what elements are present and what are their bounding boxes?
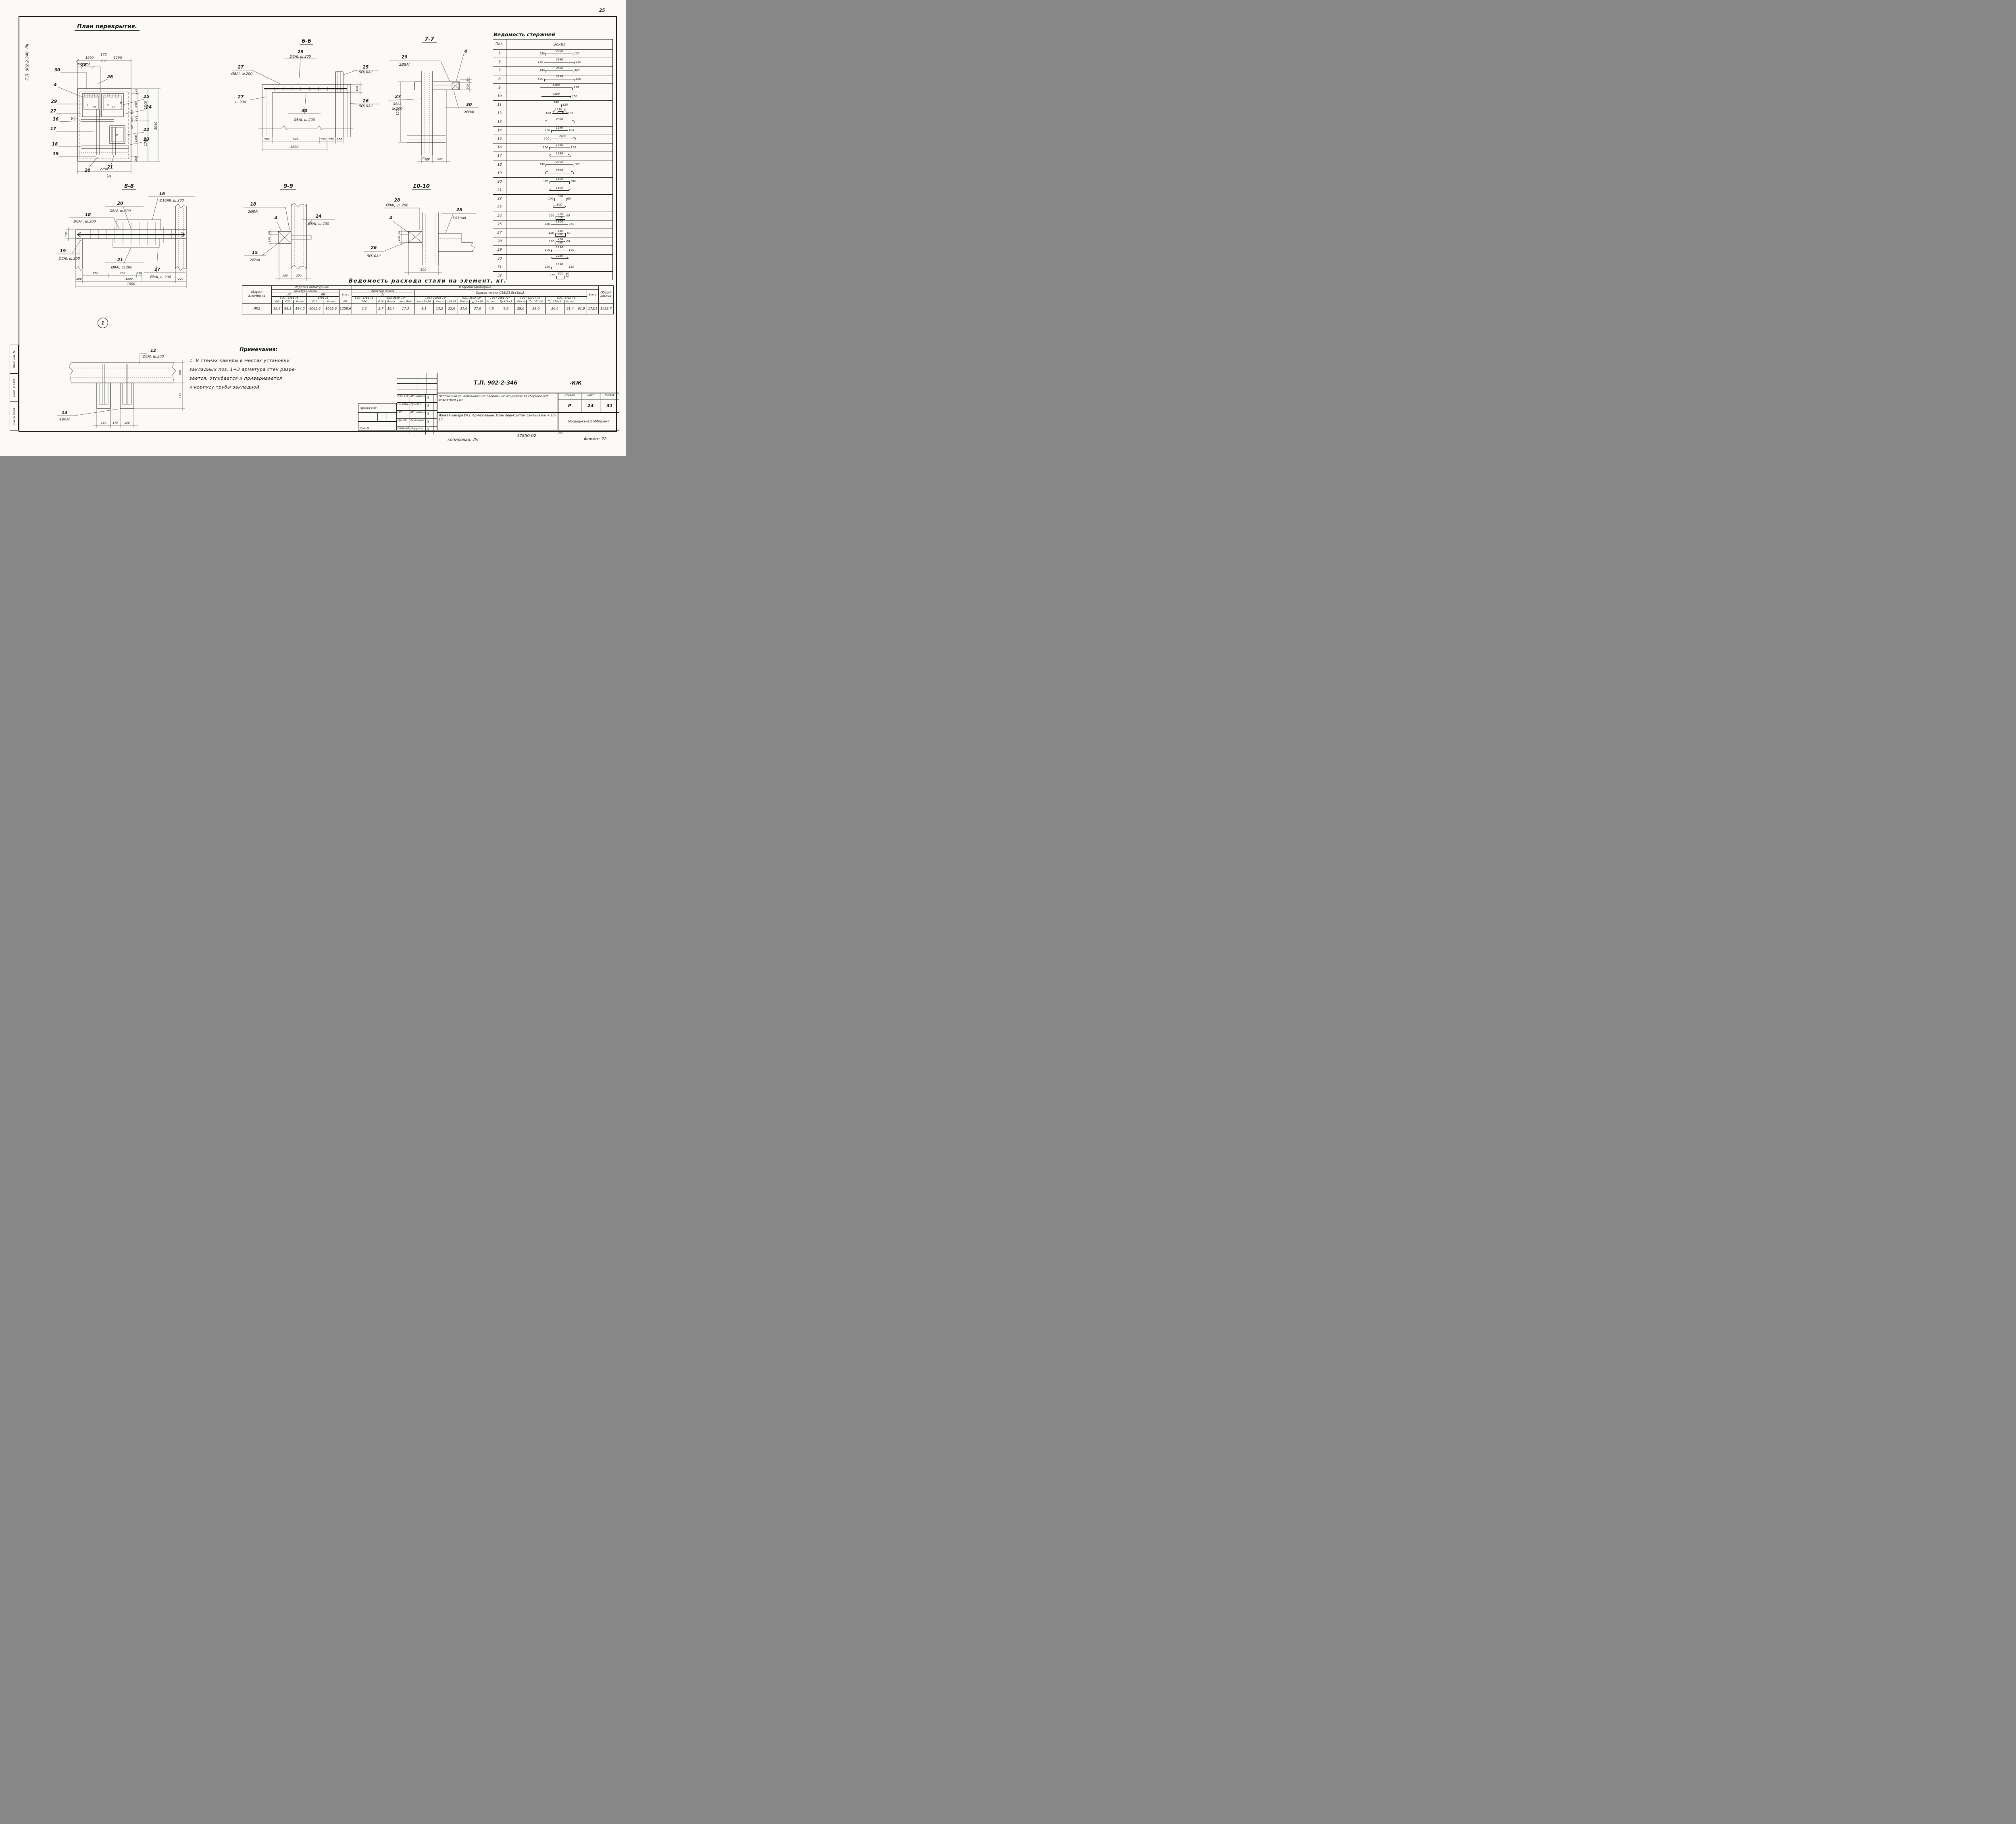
section-7-7: 7-7 29 2Ø8AI 4: [373, 34, 486, 171]
leaders: [364, 208, 476, 252]
stamp-vertical: -Т.П. 902-2-346. ЛII: [25, 10, 30, 115]
svg-text:8: 8: [108, 175, 111, 179]
svg-text:700: 700: [120, 272, 125, 275]
section-6-6: 6-6: [224, 36, 389, 157]
steel-title: Ведомость расхода стали на элемент, кг.: [242, 278, 614, 284]
signature: [426, 395, 433, 402]
svg-text:1290: 1290: [290, 145, 298, 149]
svg-text:8: 8: [107, 104, 109, 107]
rib-detail: 12 Ø8AI, ш.200 13 4Ø8AI 200 150 150 170 …: [49, 341, 198, 439]
dimension-text: 150 170 150: [101, 421, 130, 424]
annotations: 29 2Ø8AI 4 27 Ø8AI, ш.200 30 2Ø8AI 800 3…: [392, 49, 475, 116]
svg-text:150: 150: [337, 138, 342, 141]
dimension-text: 200 940 150 170 150 1290: [264, 138, 342, 149]
svg-text:940: 940: [134, 102, 137, 108]
notes: Примечания: 1. В стенах камеры в местах …: [190, 345, 371, 393]
sig-row: ИнженерНарунец: [397, 427, 437, 435]
svg-text:21: 21: [117, 258, 123, 262]
svg-text:20: 20: [85, 168, 91, 173]
empty-cells: [358, 413, 397, 422]
rods-table: Поз. Эскиз 51502700150 61502990150 75002…: [493, 39, 613, 280]
svg-text:27: 27: [395, 94, 401, 99]
rod-row: 23800: [493, 203, 612, 212]
linework: [278, 203, 311, 269]
svg-text:200: 200: [76, 277, 82, 281]
margin-cell: Инв. № подл.: [10, 402, 19, 431]
svg-text:12: 12: [150, 348, 156, 353]
svg-text:17: 17: [154, 267, 160, 272]
section-9-9: 9-9 18 2Ø8AI 4 24 Ø8AI, ш.200 15: [238, 182, 339, 287]
section-title: 7-7: [425, 36, 434, 42]
rod-row: 85002970500: [493, 75, 612, 84]
section-title: 6-6: [302, 38, 311, 44]
svg-text:100: 100: [267, 237, 271, 242]
notes-title: Примечания:: [238, 346, 279, 353]
doc-number: Т.П. 902-2-346: [474, 380, 517, 386]
plan-drawing: 30 28 26 4 29 27 16 17 18 19 20 21 25 24…: [48, 48, 222, 187]
svg-text:5Ø10AII: 5Ø10AII: [452, 216, 466, 220]
svg-text:100: 100: [466, 84, 469, 89]
svg-text:1500: 1500: [134, 135, 137, 142]
svg-text:200: 200: [424, 158, 430, 161]
rod-row: 192700: [493, 169, 612, 178]
doc-number-cell: Т.П. 902-2-346 -КЖ: [437, 373, 619, 393]
rod-row: 12100310110310100: [493, 109, 612, 118]
svg-text:2Ø8AI: 2Ø8AI: [250, 258, 260, 262]
linework: [407, 71, 460, 161]
svg-text:Ø8AI, ш.200: Ø8AI, ш.200: [109, 209, 131, 213]
svg-text:30: 30: [54, 68, 60, 73]
svg-text:29: 29: [51, 99, 57, 104]
doc-suffix: -КЖ: [570, 380, 581, 386]
svg-text:170: 170: [328, 138, 334, 141]
sig-row: Гл. спец.Руссин: [397, 403, 437, 411]
rod-row: 95100150: [493, 84, 612, 92]
dimension-lines: [417, 90, 450, 163]
sheet-code: 26: [558, 431, 562, 435]
svg-text:Ø8AI, ш 200: Ø8AI, ш 200: [294, 118, 315, 122]
rod-row: 132800: [493, 118, 612, 127]
svg-text:650: 650: [93, 272, 98, 275]
svg-text:26: 26: [107, 75, 113, 79]
svg-text:4: 4: [53, 83, 56, 87]
svg-text:25: 25: [144, 94, 150, 99]
section-title: 10-10: [413, 183, 430, 189]
svg-text:Ø10AII, ш.200: Ø10AII, ш.200: [159, 198, 184, 203]
svg-text:Ø8AI,: Ø8AI,: [392, 102, 402, 106]
annotations: 29 Ø8AI, ш.200 27 Ø8AI, ш.200 27 ш.200 2…: [231, 50, 373, 122]
svg-text:18: 18: [250, 202, 256, 207]
svg-text:27: 27: [50, 109, 56, 114]
steel-consumption: Ведомость расхода стали на элемент, кг. …: [242, 278, 614, 314]
svg-text:27: 27: [238, 95, 244, 100]
svg-text:Ø8AI, ш.200: Ø8AI, ш.200: [308, 222, 329, 226]
svg-text:200: 200: [179, 370, 182, 376]
svg-text:6: 6: [71, 117, 73, 121]
svg-text:18: 18: [85, 212, 91, 217]
svg-text:ш.200: ш.200: [235, 100, 246, 104]
svg-text:700: 700: [85, 63, 90, 66]
format-label: Формат 22: [584, 437, 606, 441]
svg-text:100: 100: [65, 231, 68, 237]
svg-text:25: 25: [456, 208, 462, 212]
rod-row: 51502700150: [493, 50, 612, 58]
svg-text:1290: 1290: [85, 56, 94, 60]
signature: [426, 427, 433, 435]
project-name: Отстойники канализационные радиальные вт…: [437, 393, 558, 412]
svg-text:3040: 3040: [154, 122, 158, 130]
svg-text:27: 27: [238, 65, 244, 70]
svg-text:2Ø8AI: 2Ø8AI: [399, 62, 410, 67]
svg-text:13: 13: [62, 410, 68, 415]
svg-text:150: 150: [320, 138, 326, 141]
rod-row: 151002430: [493, 135, 612, 144]
svg-text:30: 30: [302, 108, 308, 113]
svg-text:150: 150: [179, 393, 182, 398]
svg-text:5Ø10AII: 5Ø10AII: [359, 70, 373, 75]
plan-dimension-text: 1290 170 1290 200 700 200 940 200 1500 2…: [77, 53, 158, 171]
rod-row: 104300150: [493, 92, 612, 101]
annotations: 16 Ø10AII, ш.200 20 Ø8AI, ш.200 18 Ø8AI …: [58, 191, 184, 279]
svg-text:10: 10: [92, 106, 96, 109]
svg-text:700: 700: [131, 117, 134, 122]
svg-text:100: 100: [356, 86, 359, 92]
drawing-sheet: 25 -Т.П. 902-2-346. ЛII Взам. инв. № Под…: [0, 0, 626, 456]
title-block: Привязан: Инв. № Нач. отдМешалкин Гл. сп…: [358, 373, 619, 431]
order-number: 17850-02: [517, 434, 536, 438]
svg-text:Ø8AI , ш.200: Ø8AI , ш.200: [73, 219, 96, 224]
svg-text:18: 18: [52, 142, 58, 147]
rod-row: 161501850150: [493, 144, 612, 152]
svg-text:5Ø10AII: 5Ø10AII: [359, 104, 373, 108]
section-title: 8-8: [124, 183, 134, 189]
rod-row: 61502990150: [493, 58, 612, 67]
svg-text:150: 150: [101, 421, 106, 424]
svg-text:150: 150: [282, 274, 288, 277]
rod-row: 301250: [493, 255, 612, 263]
group-armature: Изделия арматурные: [272, 286, 352, 290]
plan-leaders: [56, 67, 146, 178]
svg-text:200: 200: [134, 156, 137, 162]
rod-row: 75002680500: [493, 67, 612, 75]
svg-text:390: 390: [420, 268, 426, 272]
dimension-lines: [93, 408, 138, 428]
svg-text:26: 26: [363, 99, 369, 104]
svg-text:150: 150: [136, 272, 142, 275]
svg-text:1900: 1900: [127, 282, 135, 286]
svg-text:29: 29: [298, 50, 304, 54]
svg-text:4: 4: [389, 216, 392, 220]
svg-text:240: 240: [437, 158, 443, 161]
svg-text:30: 30: [398, 231, 401, 234]
rod-row: 2210080060: [493, 195, 612, 203]
svg-text:2Ø8AI: 2Ø8AI: [248, 210, 258, 214]
svg-text:Ø8AI, ш.200: Ø8AI, ш.200: [142, 354, 164, 359]
svg-text:26: 26: [371, 245, 377, 250]
note-line: закладных поз. 1÷3 арматура стен разре-: [190, 367, 371, 372]
sig-row: Рук. бр.Болотова: [397, 419, 437, 427]
svg-text:2Ø8AI: 2Ø8AI: [464, 110, 474, 114]
svg-text:1700: 1700: [144, 138, 148, 146]
rod-row: 311501290150: [493, 263, 612, 272]
rod-row: 171850: [493, 152, 612, 160]
rod-row: 141001290100: [493, 127, 612, 135]
svg-text:16: 16: [159, 191, 165, 196]
margin-cell: Подп. и дата: [10, 373, 19, 402]
svg-text:30: 30: [467, 78, 469, 81]
margin-cell: Взам. инв. №: [10, 345, 19, 373]
note-line: к корпусу трубы закладной.: [190, 385, 371, 390]
steel-table: Марка элемента Изделия арматурные Издели…: [242, 285, 614, 314]
leaders: [389, 54, 479, 142]
rod-row: 181002700100: [493, 160, 612, 169]
section-10-10: 10-10 28 Ø8AI, ш. 200 4 25 5Ø10AII 2: [361, 182, 482, 287]
sheet-title: Иловая камера ИК2. Армирование. План пер…: [437, 412, 558, 431]
svg-text:200: 200: [77, 63, 83, 66]
svg-text:17: 17: [50, 127, 56, 131]
col-total: Общий расход: [599, 286, 614, 304]
element-balloon: 1: [98, 318, 108, 328]
group-embeds: Изделия закладные: [352, 286, 598, 290]
svg-text:16: 16: [53, 117, 59, 122]
note-line: зается, отгибается и приваривается: [190, 376, 371, 381]
svg-text:200: 200: [264, 138, 270, 141]
rod-row: 201001800100: [493, 178, 612, 186]
rod-row: 251501300150: [493, 220, 612, 229]
svg-text:200: 200: [178, 277, 183, 281]
annotations: 28 Ø8AI, ш. 200 4 25 5Ø10AII 26 5Ø10AII …: [367, 198, 466, 258]
section-8-8: 8-8: [52, 182, 208, 289]
linework: [76, 204, 186, 270]
svg-text:170: 170: [112, 421, 118, 424]
rod-row: 2712046040060: [493, 229, 612, 237]
svg-text:4: 4: [464, 49, 467, 54]
svg-text:9: 9: [116, 133, 118, 137]
svg-text:150: 150: [124, 421, 130, 424]
plan-title: План перекрытия.: [75, 23, 140, 31]
col-marka: Марка элемента: [242, 286, 272, 304]
signature: [426, 411, 433, 418]
rods-title: Ведомость стержней: [494, 31, 613, 37]
steel-values-row: ИК295,8 88,2194,0 1065,61065,6 1259,63,2…: [242, 303, 614, 314]
svg-text:20: 20: [117, 201, 123, 206]
svg-text:800: 800: [396, 109, 400, 115]
inv-cell: Инв. №: [358, 422, 397, 431]
svg-text:Ø8AI, ш.200: Ø8AI, ш.200: [289, 54, 311, 59]
svg-text:200: 200: [296, 274, 302, 277]
svg-text:7: 7: [87, 104, 89, 107]
organization: МосводоканалНИИпроект: [558, 412, 619, 431]
plan-linework: [77, 89, 131, 161]
svg-text:15: 15: [252, 250, 258, 255]
linework: [258, 72, 353, 137]
sig-row: ГИПМешалкин: [397, 411, 437, 419]
svg-text:Ø8AI, ш. 200: Ø8AI, ш. 200: [385, 203, 408, 208]
dimension-text: 150 200: [282, 274, 302, 277]
rod-row: 2412037031060: [493, 212, 612, 220]
rod-row: 291001250100: [493, 246, 612, 254]
annotations: 18 2Ø8AI 4 24 Ø8AI, ш.200 15 2Ø8AI 30 10…: [248, 202, 329, 262]
svg-text:10: 10: [112, 106, 116, 109]
svg-text:29: 29: [402, 55, 408, 60]
svg-text:19: 19: [53, 152, 59, 156]
svg-text:9: 9: [120, 101, 122, 104]
svg-text:1340: 1340: [144, 101, 148, 109]
privyazan-cell: Привязан:: [358, 403, 397, 413]
svg-text:28: 28: [394, 198, 400, 203]
annotations: 12 Ø8AI, ш.200 13 4Ø8AI 200 150: [59, 348, 182, 422]
svg-text:25: 25: [363, 65, 369, 70]
svg-text:4: 4: [274, 216, 277, 220]
svg-text:Ø8AI, ш.200: Ø8AI, ш.200: [150, 275, 171, 279]
svg-text:200: 200: [134, 89, 137, 94]
signature-grid: Нач. отдМешалкин Гл. спец.Руссин ГИПМеша…: [397, 373, 437, 431]
svg-text:24: 24: [316, 214, 322, 219]
svg-text:Ø8AI, ш.200: Ø8AI, ш.200: [58, 256, 80, 261]
page-number: 25: [599, 8, 605, 13]
section-title: 9-9: [283, 183, 293, 189]
svg-text:2750: 2750: [100, 167, 108, 171]
svg-text:19: 19: [60, 249, 66, 254]
svg-text:30: 30: [268, 231, 271, 234]
signature: [426, 419, 433, 426]
dimension-text: 200 240: [424, 158, 443, 161]
copied-by: копировал: Лs: [448, 438, 478, 442]
svg-text:30: 30: [466, 102, 472, 107]
svg-text:170: 170: [100, 53, 106, 56]
svg-text:Ø8AI, ш.200: Ø8AI, ш.200: [111, 265, 133, 270]
svg-text:5Ø10AII: 5Ø10AII: [367, 254, 381, 258]
svg-text:200: 200: [134, 116, 137, 121]
svg-text:200: 200: [131, 125, 134, 129]
rods-header: Поз. Эскиз: [493, 40, 612, 50]
svg-text:1500: 1500: [125, 277, 133, 281]
svg-text:22: 22: [144, 127, 150, 132]
svg-text:1290: 1290: [114, 56, 122, 60]
linework: [69, 363, 176, 408]
rod-row: 211800: [493, 186, 612, 195]
signature: [426, 403, 433, 410]
svg-text:100: 100: [398, 236, 401, 241]
rod-row: 2812041035060: [493, 237, 612, 246]
dimension-lines: [275, 243, 310, 281]
stage-block: Стадия Лист Листов Р 24 31: [558, 393, 619, 412]
svg-text:150: 150: [131, 110, 134, 114]
rods-schedule: Ведомость стержней Поз. Эскиз 5150270015…: [493, 31, 613, 280]
dimension-text: 390: [420, 268, 426, 272]
svg-text:940: 940: [293, 138, 298, 141]
sig-row: Нач. отдМешалкин: [397, 395, 437, 403]
svg-text:4Ø8AI: 4Ø8AI: [59, 417, 70, 422]
svg-text:Ø8AI, ш.200: Ø8AI, ш.200: [231, 72, 253, 76]
note-line: 1. В стенах камеры в местах установки: [190, 358, 371, 363]
